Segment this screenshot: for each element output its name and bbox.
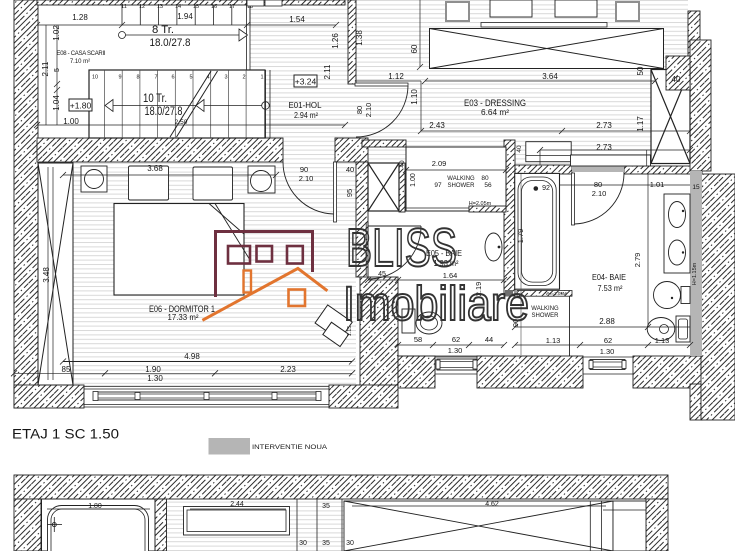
svg-text:6.64 m²: 6.64 m² <box>481 108 509 117</box>
svg-text:1: 1 <box>260 75 263 81</box>
svg-text:62: 62 <box>452 335 460 344</box>
svg-text:E04- BAIE: E04- BAIE <box>592 272 626 282</box>
svg-text:40: 40 <box>399 160 406 168</box>
svg-text:9: 9 <box>118 75 121 81</box>
svg-text:1.12: 1.12 <box>388 72 404 81</box>
svg-text:2.09: 2.09 <box>432 159 447 168</box>
svg-text:E01-HOL: E01-HOL <box>289 100 322 110</box>
svg-text:2.44: 2.44 <box>230 501 244 508</box>
svg-text:2.10: 2.10 <box>592 189 607 198</box>
svg-text:10 Tr.: 10 Tr. <box>143 93 167 105</box>
svg-text:30: 30 <box>299 540 307 547</box>
svg-text:INTERVENTIE NOUA: INTERVENTIE NOUA <box>252 444 328 451</box>
svg-text:ETAJ 1 SC 1.50: ETAJ 1 SC 1.50 <box>12 427 119 442</box>
svg-text:92: 92 <box>542 185 550 192</box>
svg-text:35: 35 <box>322 540 330 547</box>
svg-text:3.48: 3.48 <box>42 267 51 283</box>
svg-text:17: 17 <box>229 4 235 10</box>
svg-text:1.17: 1.17 <box>636 116 645 132</box>
svg-text:SHOWER: SHOWER <box>532 313 560 319</box>
svg-text:80: 80 <box>481 175 489 182</box>
svg-text:10: 10 <box>92 75 98 81</box>
svg-text:56: 56 <box>484 182 492 189</box>
svg-text:1.54: 1.54 <box>289 15 305 24</box>
svg-text:1.13: 1.13 <box>655 336 670 345</box>
svg-text:2.73: 2.73 <box>596 143 612 152</box>
svg-text:30: 30 <box>346 540 354 547</box>
svg-text:1.79: 1.79 <box>516 229 525 244</box>
svg-text:15: 15 <box>692 184 700 191</box>
svg-text:WALKING: WALKING <box>531 306 559 312</box>
svg-text:VH=2.05M: VH=2.05M <box>545 291 567 296</box>
svg-text:97: 97 <box>434 182 442 189</box>
svg-text:2.43: 2.43 <box>429 121 445 130</box>
svg-text:40: 40 <box>516 145 523 153</box>
svg-text:2.10: 2.10 <box>299 174 314 183</box>
svg-text:50: 50 <box>636 66 645 75</box>
svg-text:40: 40 <box>346 165 354 174</box>
svg-text:1.13: 1.13 <box>546 336 561 345</box>
svg-text:2.79: 2.79 <box>633 253 642 268</box>
svg-text:90: 90 <box>300 165 308 174</box>
svg-text:1.28: 1.28 <box>72 13 88 22</box>
svg-text:7.10 m²: 7.10 m² <box>70 59 90 65</box>
svg-text:5: 5 <box>189 75 192 81</box>
svg-text:SHOWER: SHOWER <box>448 183 476 189</box>
svg-text:5: 5 <box>54 68 61 72</box>
svg-text:+1.80: +1.80 <box>70 101 92 111</box>
svg-text:H=2.05m: H=2.05m <box>469 201 492 207</box>
svg-text:35: 35 <box>322 503 330 510</box>
svg-text:2.88: 2.88 <box>599 317 615 326</box>
svg-text:40: 40 <box>672 75 681 84</box>
svg-text:1.01: 1.01 <box>650 180 665 189</box>
svg-text:1.00: 1.00 <box>410 173 417 187</box>
svg-text:17.33 m²: 17.33 m² <box>168 313 199 322</box>
svg-text:1.38: 1.38 <box>355 30 364 46</box>
svg-text:3: 3 <box>224 75 227 81</box>
svg-text:2: 2 <box>242 75 245 81</box>
svg-text:1.94: 1.94 <box>177 12 193 21</box>
svg-text:1.26: 1.26 <box>331 33 340 49</box>
svg-text:2.11: 2.11 <box>41 61 50 77</box>
svg-text:4.98: 4.98 <box>184 352 200 361</box>
svg-text:1.04: 1.04 <box>52 95 61 111</box>
svg-text:E08 - CASA SCARII: E08 - CASA SCARII <box>57 51 106 57</box>
svg-text:Imobiliare: Imobiliare <box>343 278 529 331</box>
svg-text:44: 44 <box>485 335 493 344</box>
svg-text:95: 95 <box>345 189 354 197</box>
svg-text:7.53 m²: 7.53 m² <box>598 284 623 293</box>
svg-text:15: 15 <box>193 4 199 10</box>
svg-text:62: 62 <box>604 336 612 345</box>
svg-text:2.94 m²: 2.94 m² <box>294 111 318 120</box>
svg-text:4: 4 <box>206 75 209 81</box>
svg-text:BLISS: BLISS <box>346 218 457 278</box>
svg-text:2.10: 2.10 <box>364 103 373 118</box>
svg-text:80: 80 <box>355 106 364 114</box>
svg-text:13: 13 <box>157 4 163 10</box>
svg-text:1.30: 1.30 <box>147 374 163 383</box>
svg-text:2.73: 2.73 <box>596 121 612 130</box>
svg-text:2.23: 2.23 <box>280 365 296 374</box>
svg-text:1.00: 1.00 <box>63 117 79 126</box>
svg-text:7: 7 <box>154 75 157 81</box>
svg-text:WALKING: WALKING <box>447 176 475 182</box>
svg-text:80: 80 <box>594 180 602 189</box>
svg-text:16: 16 <box>211 4 217 10</box>
svg-text:+3.24: +3.24 <box>295 77 317 87</box>
svg-text:58: 58 <box>414 335 422 344</box>
svg-text:E03 - DRESSING: E03 - DRESSING <box>464 98 526 108</box>
svg-text:4.62: 4.62 <box>485 501 499 508</box>
svg-text:3.68: 3.68 <box>147 164 163 173</box>
svg-text:2.11: 2.11 <box>323 64 332 80</box>
svg-text:8 Tr.: 8 Tr. <box>152 24 174 36</box>
svg-text:H=1.15m: H=1.15m <box>692 262 698 285</box>
svg-text:60: 60 <box>410 44 419 53</box>
svg-text:85: 85 <box>62 365 71 374</box>
svg-text:6: 6 <box>171 75 174 81</box>
svg-text:14: 14 <box>175 4 181 10</box>
svg-text:1.90: 1.90 <box>145 365 161 374</box>
svg-text:1.30: 1.30 <box>448 346 463 355</box>
svg-text:11: 11 <box>121 4 127 10</box>
svg-text:8: 8 <box>136 75 139 81</box>
svg-text:18.0/27.8: 18.0/27.8 <box>145 106 183 118</box>
svg-text:18.0/27.8: 18.0/27.8 <box>150 37 191 49</box>
svg-text:1.10: 1.10 <box>410 89 419 105</box>
svg-text:1.02: 1.02 <box>52 25 61 41</box>
svg-text:3.64: 3.64 <box>542 72 558 81</box>
svg-text:1.30: 1.30 <box>600 347 615 356</box>
svg-text:12: 12 <box>139 4 145 10</box>
